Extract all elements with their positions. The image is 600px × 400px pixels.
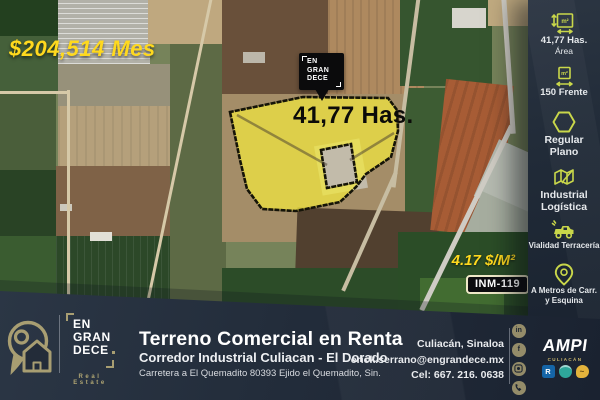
realtor-badge: R	[542, 365, 555, 378]
brand-corner-bracket	[106, 360, 114, 368]
sidebar-item-zoning: Industrial Logística	[540, 165, 587, 213]
field-patch	[170, 44, 226, 310]
dirt-road-truck-icon	[551, 219, 577, 241]
instagram-icon	[512, 362, 526, 376]
brand-pin-house-logo	[4, 317, 54, 385]
sidebar-item-area: m² 41,77 Has. Área	[541, 11, 587, 56]
area-label: 41,77 Has.	[293, 102, 413, 130]
building-speck	[243, 52, 265, 63]
frontage-measure-icon: m²	[552, 65, 576, 87]
industrial-map-icon	[551, 165, 577, 189]
real-estate-tagline: Real Estate	[60, 374, 120, 386]
field-patch	[58, 106, 170, 166]
road	[0, 91, 68, 94]
contact-block: Culiacán, Sinaloa erick.serrano@engrande…	[351, 337, 504, 384]
ampi-location: CULIACÁN	[535, 357, 595, 362]
listing-code-badge: INM-119	[466, 275, 529, 294]
field-patch	[0, 0, 58, 36]
sidebar-item-shape: Regular Plano	[544, 110, 583, 158]
building-speck	[90, 232, 112, 241]
field-patch	[55, 166, 171, 236]
whatsapp-icon	[512, 381, 526, 395]
linkedin-icon: in	[512, 324, 526, 338]
field-patch	[58, 64, 170, 106]
listing-poster: $204,514 Mes EN GRAN DECE 41,77 Has. 4.1…	[0, 0, 600, 400]
ampi-logo: AMPI CULIACÁN R ~	[535, 338, 595, 378]
brand-map-marker: EN GRAN DECE	[299, 53, 344, 90]
building-speck	[452, 8, 486, 28]
sidebar-item-frontage: m² 150 Frente	[540, 65, 588, 98]
marker-wordmark: EN GRAN DECE	[307, 58, 329, 84]
svg-text:m²: m²	[561, 70, 568, 77]
field-patch	[0, 170, 56, 236]
building-speck	[60, 204, 72, 211]
facility-buildings	[314, 138, 368, 195]
gold-badge: ~	[576, 365, 589, 378]
contact-city: Culiacán, Sinaloa	[351, 337, 504, 353]
monthly-price-label: $204,514 Mes	[9, 36, 156, 62]
ampi-wordmark: AMPI	[542, 338, 589, 354]
area-measure-icon: m²	[551, 11, 577, 35]
nar-badge	[559, 365, 572, 378]
facebook-icon: f	[512, 343, 526, 357]
footer-divider	[509, 328, 510, 384]
social-icons: in f	[512, 324, 526, 395]
marker-pointer	[315, 89, 329, 101]
hexagon-shape-icon	[551, 110, 577, 134]
location-pin-icon	[551, 262, 577, 286]
brand-wordmark: EN GRAN DECE	[73, 318, 115, 357]
marker-corner-bracket	[336, 82, 341, 87]
listing-address: Carretera a El Quemadito 80393 Ejido el …	[139, 368, 381, 379]
contact-email: erick.serrano@engrandece.mx	[351, 353, 504, 369]
contact-phone: Cel: 667. 216. 0638	[351, 368, 504, 384]
footer-divider	[59, 315, 60, 373]
field-patch	[0, 94, 56, 170]
price-per-m2-label: 4.17 $/M²	[452, 252, 515, 269]
road	[67, 90, 70, 302]
sidebar-item-location: A Metros de Carr. y Esquina	[531, 262, 597, 306]
info-sidebar: m² 41,77 Has. Área m² 150 Frente Regular…	[528, 0, 600, 332]
ampi-badges: R ~	[535, 365, 595, 378]
svg-text:m²: m²	[561, 18, 568, 25]
sidebar-item-access: Vialidad Terracería	[529, 219, 600, 251]
